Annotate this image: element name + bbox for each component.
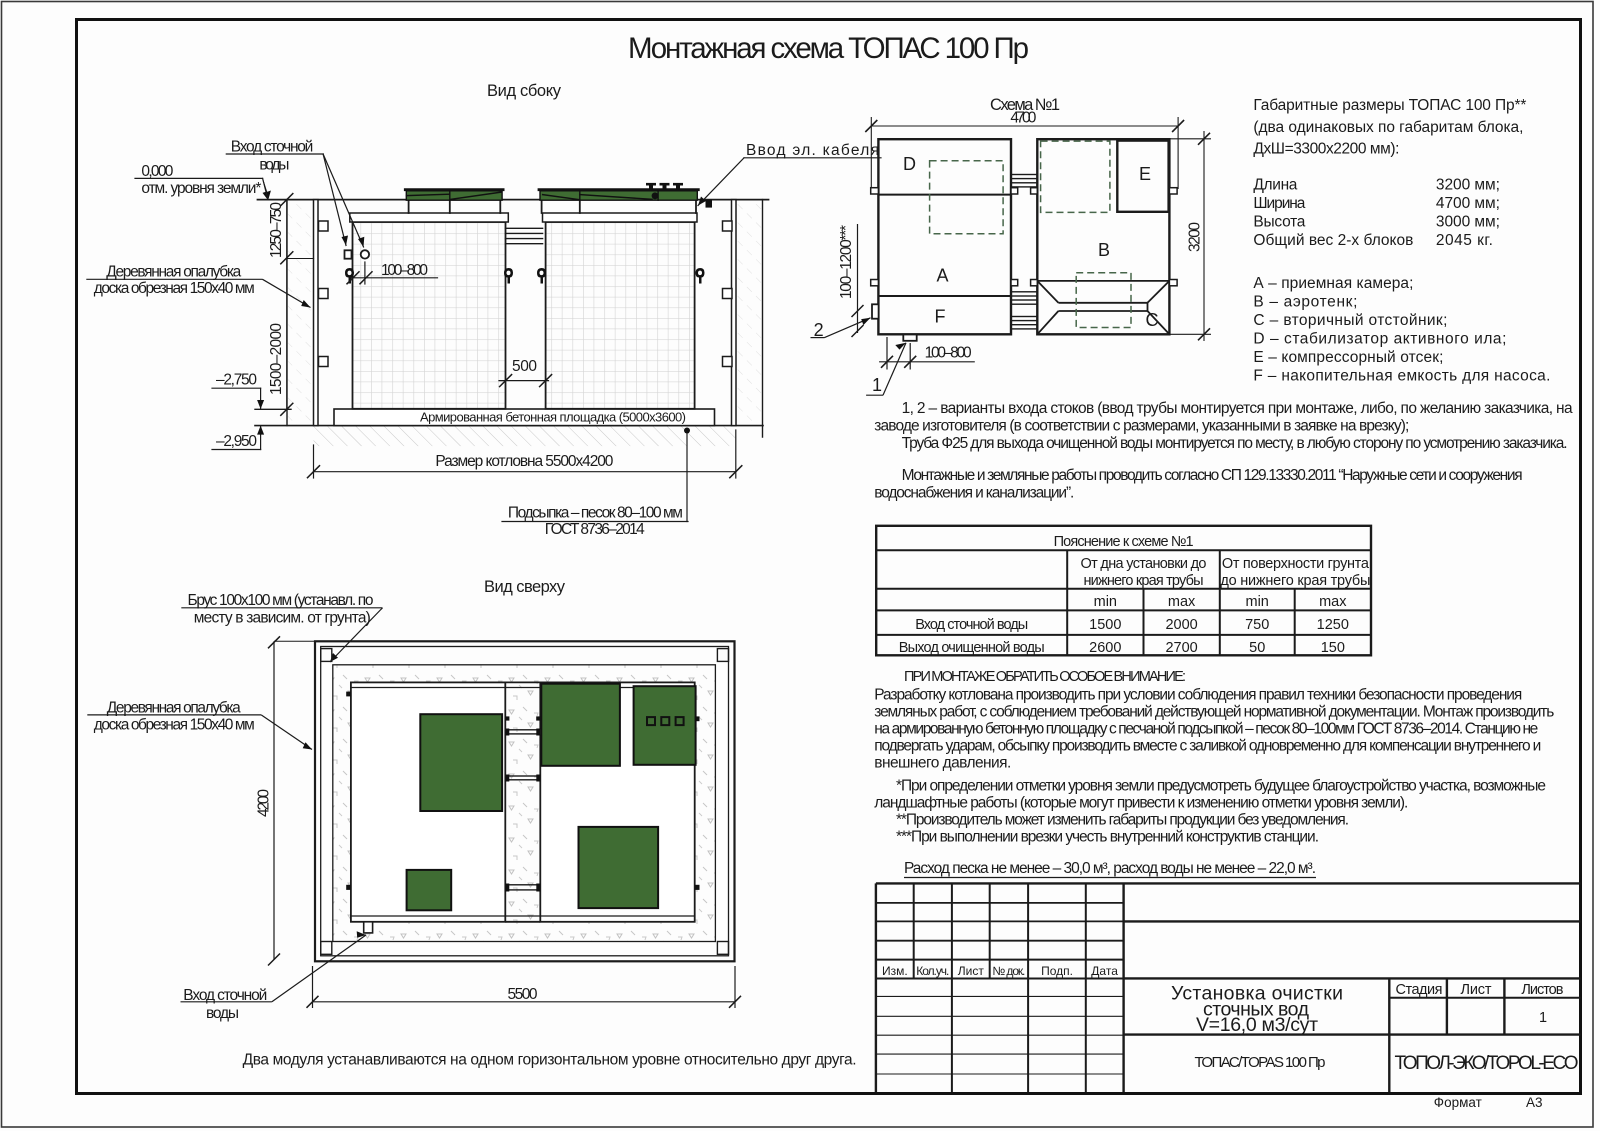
svg-text:ДхШ=3300х2200 мм):: ДхШ=3300х2200 мм): [1253,141,1399,158]
svg-text:От дна установки до: От дна установки до [1081,556,1207,572]
svg-text:150: 150 [1321,640,1345,656]
svg-text:Ввод эл. кабеля: Ввод эл. кабеля [746,142,879,159]
svg-text:внешнего давления.: внешнего давления. [874,755,1011,772]
svg-text:Вид сверху: Вид сверху [484,578,566,596]
svg-text:5500: 5500 [508,986,538,1003]
svg-text:Подсыпка – песок 80–100 мм: Подсыпка – песок 80–100 мм [508,505,683,522]
svg-text:Монтажные и земляные работы пр: Монтажные и земляные работы проводить со… [902,467,1523,484]
svg-text:ПРИ МОНТАЖЕ ОБРАТИТЬ ОСОБОЕ ВН: ПРИ МОНТАЖЕ ОБРАТИТЬ ОСОБОЕ ВНИМАНИЕ: [904,669,1186,685]
svg-text:1500–2000: 1500–2000 [268,323,285,395]
svg-text:1500: 1500 [1089,617,1121,633]
svg-text:min: min [1246,594,1269,610]
svg-text:***При выполнении врезки учест: ***При выполнении врезки учесть внутренн… [896,829,1319,846]
svg-text:земляных работ, с соблюдением: земляных работ, с соблюдением требований… [874,704,1554,721]
svg-text:доска обрезная 150х40 мм: доска обрезная 150х40 мм [94,717,255,734]
svg-text:Дата: Дата [1091,964,1118,978]
svg-text:воды: воды [206,1005,239,1022]
svg-text:ТОПОЛ-ЭКО/TOPOL-ECO: ТОПОЛ-ЭКО/TOPOL-ECO [1395,1053,1579,1074]
svg-text:F: F [935,307,946,327]
svg-text:Брус 100х100 мм (устанавл. по: Брус 100х100 мм (устанавл. по [188,592,374,609]
svg-text:доска обрезная 150х40 мм: доска обрезная 150х40 мм [94,280,255,297]
svg-text:Изм.: Изм. [882,964,908,978]
svg-text:E: E [1139,164,1151,184]
svg-text:Деревянная опалубка: Деревянная опалубка [106,264,241,281]
svg-text:ландшафтные работы (которые мо: ландшафтные работы (которые могут привес… [874,795,1408,812]
svg-text:отм. уровня земли*: отм. уровня земли* [141,180,261,197]
svg-text:*При определении отметки уровн: *При определении отметки уровня земли пр… [896,778,1546,795]
svg-text:Вход сточной: Вход сточной [231,139,313,156]
svg-text:заводе изготовителя (в соответ: заводе изготовителя (в соответствии с ра… [874,418,1409,435]
svg-text:Расход песка не менее – 30,0 м: Расход песка не менее – 30,0 м³, расход … [904,860,1316,877]
svg-text:Вход сточной воды: Вход сточной воды [915,617,1028,633]
svg-text:ТОПАС/TOPAS 100 Пр: ТОПАС/TOPAS 100 Пр [1195,1054,1326,1071]
svg-text:Пояснение к схеме №1: Пояснение к схеме №1 [1054,534,1194,550]
svg-text:№ док.: № док. [992,964,1025,978]
svg-text:до нижнего края трубы: до нижнего края трубы [1220,573,1370,589]
svg-text:Длина: Длина [1253,177,1297,194]
svg-text:Лист: Лист [958,964,985,978]
svg-text:(два одинаковых по габаритам б: (два одинаковых по габаритам блока, [1253,119,1523,136]
svg-text:100–800: 100–800 [925,345,972,362]
svg-text:А – приемная камера;: А – приемная камера; [1253,275,1413,292]
svg-text:Армированная бетонная площадка: Армированная бетонная площадка (5000x360… [420,410,686,425]
svg-text:2600: 2600 [1089,640,1121,656]
svg-text:V=16,0 м3/сут: V=16,0 м3/сут [1196,1014,1318,1036]
svg-text:4200: 4200 [256,789,273,817]
svg-text:min: min [1094,594,1117,610]
svg-text:–2,750: –2,750 [216,372,257,389]
svg-text:Е – компрессорный отсек;: Е – компрессорный отсек; [1253,349,1443,366]
svg-text:на армированную бетонную площа: на армированную бетонную площадку с песч… [874,721,1538,738]
svg-text:3200 мм;: 3200 мм; [1436,177,1500,194]
svg-text:3000 мм;: 3000 мм; [1436,214,1500,231]
svg-text:0,000: 0,000 [141,163,173,180]
svg-text:max: max [1168,594,1196,610]
svg-text:Стадия: Стадия [1396,982,1443,998]
svg-text:max: max [1319,594,1347,610]
svg-text:Разработку котлована производи: Разработку котлована производить при усл… [874,687,1522,704]
svg-text:**Производитель может изменить: **Производитель может изменить габариты … [896,812,1349,829]
svg-text:Кол.уч.: Кол.уч. [916,964,949,978]
svg-text:1250: 1250 [1317,617,1349,633]
svg-text:–2,950: –2,950 [216,433,257,450]
svg-text:нижнего края трубы: нижнего края трубы [1084,573,1204,589]
svg-text:1250–750: 1250–750 [268,202,285,258]
svg-text:1, 2 – варианты входа стоков: 1, 2 – варианты входа стоков (ввод трубы… [902,400,1573,417]
svg-text:2045 кг.: 2045 кг. [1436,232,1493,249]
svg-text:750: 750 [1245,617,1269,633]
svg-text:Лист: Лист [1461,982,1492,998]
svg-text:подвергать ударам, обсыпку про: подвергать ударам, обсыпку производить в… [874,738,1541,755]
svg-text:Труба Ф25 для выхода очищенной: Труба Ф25 для выхода очищенной воды монт… [902,435,1568,452]
svg-text:Подп.: Подп. [1041,964,1073,978]
svg-text:Габаритные размеры ТОПАС 100 П: Габаритные размеры ТОПАС 100 Пр** [1253,97,1526,114]
svg-text:D – стабилизатор активного ила: D – стабилизатор активного ила; [1253,331,1506,348]
svg-text:С – вторичный отстойник;: С – вторичный отстойник; [1253,312,1447,329]
svg-text:A: A [937,266,949,286]
svg-text:Деревянная опалубка: Деревянная опалубка [107,700,241,717]
svg-text:Монтажная схема ТОПАС 100 Пр: Монтажная схема ТОПАС 100 Пр [628,32,1029,65]
svg-text:1: 1 [872,375,882,395]
svg-text:Размер котловна 5500х4200: Размер котловна 5500х4200 [435,453,613,470]
svg-text:Ширина: Ширина [1253,195,1305,212]
svg-text:Формат: Формат [1434,1095,1482,1110]
svg-text:От поверхности грунта: От поверхности грунта [1222,556,1370,572]
svg-text:В – аэротенк;: В – аэротенк; [1253,294,1357,311]
svg-text:Вид сбоку: Вид сбоку [487,82,562,100]
svg-text:F – накопительная емкость для: F – накопительная емкость для насоса. [1253,368,1550,385]
svg-text:2700: 2700 [1165,640,1197,656]
svg-text:2000: 2000 [1165,617,1197,633]
svg-text:Общий вес 2-х блоков: Общий вес 2-х блоков [1253,232,1413,249]
svg-text:4700 мм;: 4700 мм; [1436,195,1500,212]
svg-text:D: D [903,154,916,174]
svg-text:100–800: 100–800 [381,262,428,279]
svg-text:А3: А3 [1526,1095,1543,1110]
svg-text:Листов: Листов [1521,982,1563,998]
svg-text:ГОСТ 8736–2014: ГОСТ 8736–2014 [545,521,645,538]
svg-text:месту в зависим. от грунта): месту в зависим. от грунта) [194,610,371,627]
svg-text:воды: воды [259,157,289,174]
svg-text:водоснабжения и канализации”.: водоснабжения и канализации”. [874,485,1074,502]
svg-text:500: 500 [512,358,537,375]
svg-text:B: B [1098,240,1110,260]
svg-text:Два модуля устанавливаются на: Два модуля устанавливаются на одном гори… [243,1052,857,1069]
svg-text:Выход очищенной воды: Выход очищенной воды [899,640,1045,656]
svg-text:Высота: Высота [1253,214,1305,231]
svg-text:1: 1 [1539,1010,1547,1026]
svg-text:50: 50 [1249,640,1265,656]
svg-text:3200: 3200 [1187,222,1204,252]
svg-text:100–1200***: 100–1200*** [838,225,855,299]
svg-text:4700: 4700 [1010,110,1036,127]
